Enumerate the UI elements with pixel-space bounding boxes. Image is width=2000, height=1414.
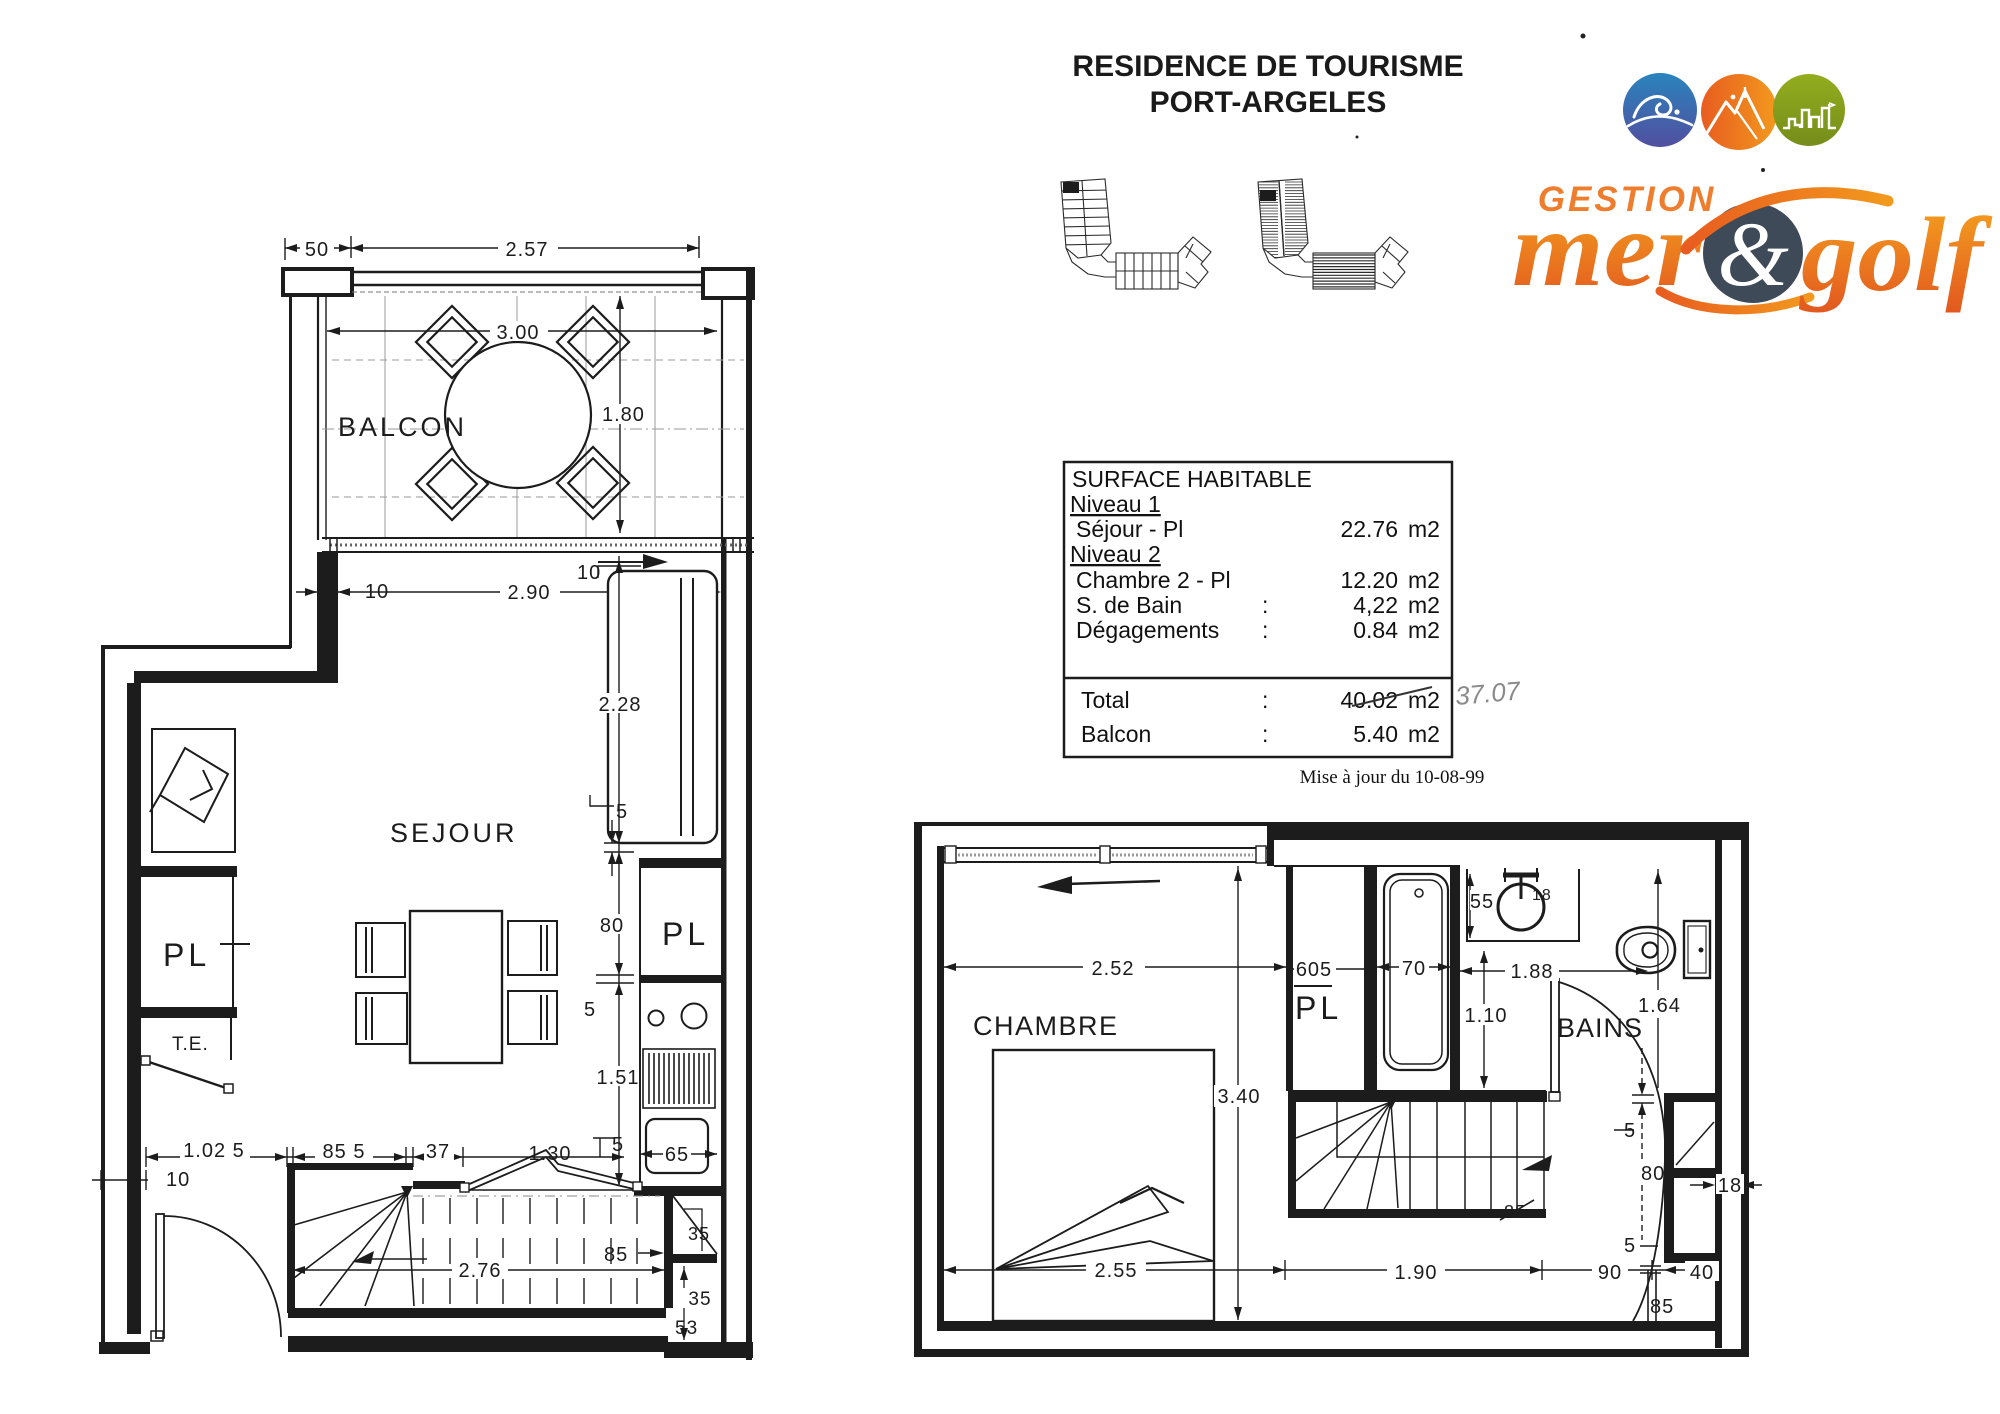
svg-text:Niveau 1: Niveau 1: [1070, 491, 1161, 517]
svg-text:80: 80: [1641, 1163, 1665, 1185]
svg-text:SEJOUR: SEJOUR: [390, 818, 518, 848]
svg-text:37.07: 37.07: [1454, 675, 1523, 711]
svg-text:12.20: 12.20: [1340, 567, 1398, 593]
svg-text:PL: PL: [1295, 990, 1342, 1026]
svg-text:Niveau 2: Niveau 2: [1070, 541, 1161, 567]
svg-text:4,22: 4,22: [1353, 592, 1398, 618]
svg-text:35: 35: [688, 1224, 710, 1244]
svg-text:1.88: 1.88: [1511, 961, 1554, 983]
svg-text:m2: m2: [1408, 721, 1440, 747]
svg-text:BALCON: BALCON: [338, 412, 467, 442]
svg-text::: :: [1262, 721, 1268, 747]
svg-text:3.40: 3.40: [1218, 1086, 1261, 1108]
svg-text:40.02: 40.02: [1340, 687, 1398, 713]
svg-text:70: 70: [1402, 958, 1426, 980]
svg-text:Mise à jour du 10-08-99: Mise à jour du 10-08-99: [1300, 767, 1485, 788]
svg-text:5.40: 5.40: [1353, 721, 1398, 747]
svg-text:1.10: 1.10: [1465, 1005, 1508, 1027]
svg-text:Dégagements: Dégagements: [1076, 617, 1219, 643]
svg-text:2.57: 2.57: [506, 239, 549, 261]
svg-text:1.80: 1.80: [602, 404, 645, 426]
svg-text:mer: mer: [1512, 190, 1703, 309]
svg-text:35: 35: [688, 1289, 711, 1310]
svg-text:T.E.: T.E.: [172, 1034, 209, 1055]
svg-text:50: 50: [305, 239, 329, 261]
svg-text:m2: m2: [1408, 567, 1440, 593]
svg-text::: :: [1262, 687, 1268, 713]
svg-text:m2: m2: [1408, 617, 1440, 643]
svg-text:37: 37: [426, 1141, 450, 1163]
svg-text:2.76: 2.76: [459, 1260, 502, 1282]
svg-text:S. de Bain: S. de Bain: [1076, 592, 1182, 618]
svg-text:3.00: 3.00: [497, 322, 540, 344]
svg-text::: :: [1262, 592, 1268, 618]
svg-text:Total: Total: [1081, 687, 1130, 713]
svg-text:golf: golf: [1799, 196, 1993, 313]
svg-text:22.76: 22.76: [1340, 516, 1398, 542]
svg-text:2.55: 2.55: [1095, 1260, 1138, 1282]
svg-text:18: 18: [1718, 1175, 1742, 1197]
svg-text:5: 5: [616, 801, 628, 823]
svg-text:85: 85: [604, 1244, 628, 1266]
svg-text:2.28: 2.28: [599, 694, 642, 716]
svg-text:1.64: 1.64: [1638, 995, 1681, 1017]
svg-text:55: 55: [1470, 891, 1494, 913]
svg-text:5: 5: [1624, 1235, 1636, 1257]
svg-text:18: 18: [1532, 887, 1552, 904]
svg-text:1.90: 1.90: [1395, 1262, 1438, 1284]
svg-text:80: 80: [600, 915, 624, 937]
svg-text:5: 5: [584, 999, 596, 1021]
svg-text:53: 53: [675, 1318, 698, 1339]
svg-text:90: 90: [1598, 1262, 1622, 1284]
svg-text:0.84: 0.84: [1353, 617, 1398, 643]
svg-text:40: 40: [1690, 1262, 1714, 1284]
svg-text:PL: PL: [163, 937, 210, 973]
svg-text:5: 5: [612, 1134, 624, 1156]
svg-text:SURFACE HABITABLE: SURFACE HABITABLE: [1072, 466, 1312, 492]
svg-text::: :: [1262, 617, 1268, 643]
svg-text:Balcon: Balcon: [1081, 721, 1151, 747]
svg-text:1.51: 1.51: [597, 1067, 640, 1089]
svg-text:Séjour - Pl: Séjour - Pl: [1076, 516, 1183, 542]
svg-text:1.02 5: 1.02 5: [183, 1140, 245, 1162]
svg-text:m2: m2: [1408, 592, 1440, 618]
svg-text:CHAMBRE: CHAMBRE: [973, 1011, 1119, 1041]
svg-text:10: 10: [577, 562, 601, 584]
svg-text:85 5: 85 5: [323, 1141, 366, 1163]
svg-text:1.30: 1.30: [529, 1143, 572, 1165]
svg-text:PORT-ARGELES: PORT-ARGELES: [1150, 86, 1387, 119]
svg-text:PL: PL: [662, 916, 709, 952]
svg-text:85: 85: [1650, 1296, 1674, 1318]
svg-text:65: 65: [665, 1144, 689, 1166]
svg-text:BAINS: BAINS: [1557, 1013, 1643, 1043]
svg-text:RESIDENCE DE TOURISME: RESIDENCE DE TOURISME: [1072, 50, 1463, 83]
svg-text:2.52: 2.52: [1092, 958, 1135, 980]
svg-text:5: 5: [1624, 1120, 1636, 1142]
svg-text:605: 605: [1296, 959, 1332, 981]
svg-text:m2: m2: [1408, 516, 1440, 542]
svg-text:2.90: 2.90: [508, 582, 551, 604]
svg-text:10: 10: [166, 1169, 190, 1191]
svg-text:Chambre 2 - Pl: Chambre 2 - Pl: [1076, 567, 1231, 593]
